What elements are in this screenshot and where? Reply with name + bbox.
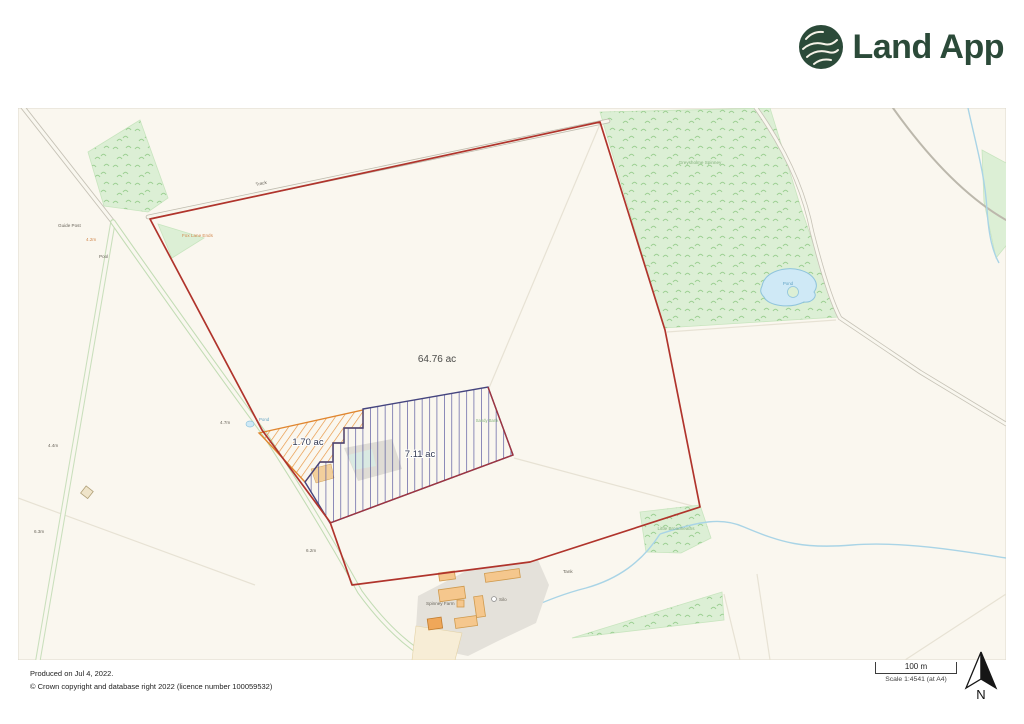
label-blue-area: 7.11 ac <box>405 449 436 460</box>
produced-date: Produced on Jul 4, 2022. <box>30 667 272 680</box>
north-arrow-icon <box>958 650 1004 690</box>
silo-symbol <box>492 597 497 602</box>
label-main-area: 64.76 ac <box>418 354 456 365</box>
map-svg: Track Guide Post Fox Lane Ends 4.2m Pool… <box>18 108 1006 660</box>
label-spot-height-5: 6.2m <box>306 548 316 553</box>
label-spot-height-3: 6.3m <box>34 529 44 534</box>
label-lane-pond: Pond <box>259 417 270 422</box>
label-spot-height-2: 4.4m <box>48 443 58 448</box>
landapp-logo-icon <box>798 24 844 70</box>
label-greysholme-spinney: Greysholme Spinney <box>679 160 722 165</box>
label-orange-area: 1.70 ac <box>292 437 323 448</box>
label-spot-height-4: 4.7m <box>220 420 230 425</box>
label-fox-lane-ends: Fox Lane Ends <box>182 233 214 238</box>
label-little-broadheaths: Little Broadheaths <box>657 526 695 531</box>
map-canvas: Track Guide Post Fox Lane Ends 4.2m Pool… <box>18 108 1006 660</box>
lane-pond <box>246 421 254 427</box>
scale-bar-distance: 100 m <box>905 662 927 671</box>
scale-ratio: Scale 1:4541 (at A4) <box>875 676 957 683</box>
pond-island <box>788 287 799 298</box>
label-spinney-farm: Spinney Farm <box>426 601 455 606</box>
brand-logo: Land App <box>798 24 1005 70</box>
attribution: Produced on Jul 4, 2022. © Crown copyrig… <box>30 667 272 693</box>
label-guide-post: Guide Post <box>58 223 81 228</box>
copyright-text: © Crown copyright and database right 202… <box>30 680 272 693</box>
label-pool: Pool <box>99 254 108 259</box>
north-arrow: N <box>958 650 1004 702</box>
scale-bar: 100 m Scale 1:4541 (at A4) <box>875 662 957 683</box>
page: Land App <box>0 0 1024 724</box>
label-silo: Silo <box>499 597 507 602</box>
label-pond: Pond <box>783 281 794 286</box>
brand-name: Land App <box>853 28 1005 67</box>
farmhouse <box>427 617 442 630</box>
label-sandy-bank: Sandy Bank <box>476 418 499 423</box>
label-spot-height-1: 4.2m <box>86 237 96 242</box>
scale-bar-bracket: 100 m <box>875 662 957 674</box>
label-tank: Tank <box>563 569 573 574</box>
